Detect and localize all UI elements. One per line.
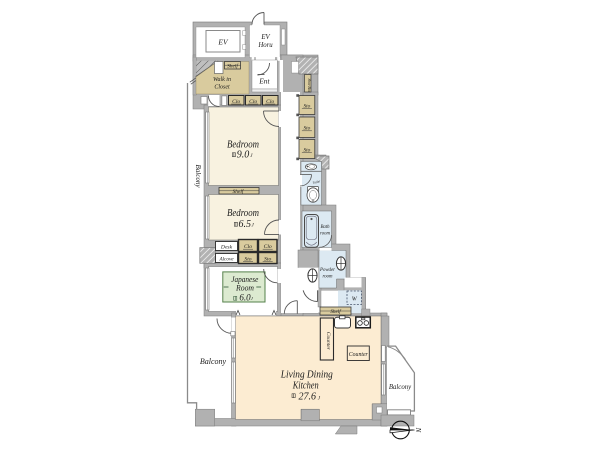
svg-text:6.0: 6.0 [239, 293, 251, 303]
svg-text:EV: EV [217, 38, 229, 47]
svg-text:Shelf: Shelf [227, 62, 239, 69]
svg-text:Bedroom: Bedroom [227, 207, 259, 219]
svg-text:Bath: Bath [320, 225, 330, 230]
svg-text:N: N [414, 427, 422, 433]
svg-text:27.6: 27.6 [299, 392, 317, 403]
svg-text:Counter: Counter [325, 332, 331, 351]
svg-text:Closet: Closet [214, 85, 230, 91]
svg-text:9.0: 9.0 [237, 149, 250, 160]
svg-text:Desk: Desk [220, 245, 233, 251]
svg-text:room: room [320, 232, 330, 237]
svg-text:Living Dining: Living Dining [280, 368, 333, 380]
svg-text:Powder: Powder [319, 268, 335, 273]
svg-text:Balcony: Balcony [200, 357, 227, 366]
svg-text:EV: EV [260, 34, 270, 41]
svg-text:Ent: Ent [258, 77, 270, 86]
svg-text:Walk in: Walk in [213, 77, 231, 83]
svg-text:Alcove: Alcove [218, 257, 234, 263]
svg-text:Shoe Box: Shoe Box [307, 78, 311, 92]
svg-text:Balcony: Balcony [389, 384, 412, 391]
svg-text:Horu: Horu [257, 42, 273, 49]
svg-text:Counter: Counter [349, 352, 369, 358]
svg-text:6.5: 6.5 [239, 219, 252, 230]
svg-text:Kitchen: Kitchen [292, 380, 319, 392]
svg-text:Room: Room [235, 283, 254, 293]
svg-text:Balcony: Balcony [194, 165, 202, 189]
svg-text:Shelf: Shelf [233, 188, 245, 195]
svg-text:Shelf: Shelf [330, 308, 342, 315]
svg-text:room: room [323, 275, 333, 280]
